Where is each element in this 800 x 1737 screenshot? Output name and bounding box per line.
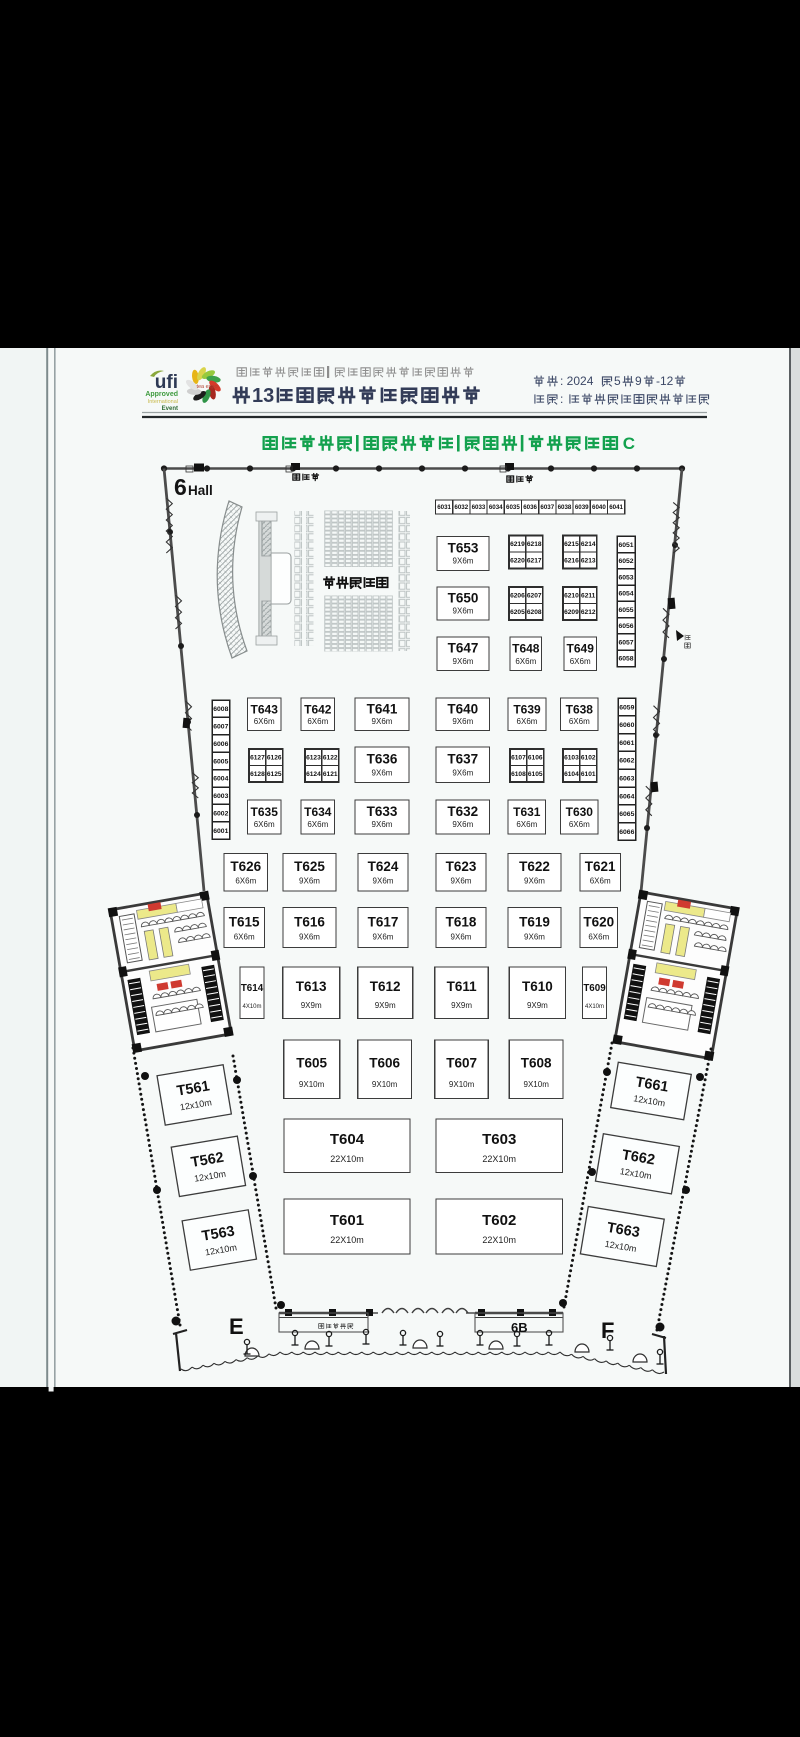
svg-text:6108: 6108 bbox=[511, 771, 526, 778]
svg-text:6X6m: 6X6m bbox=[570, 657, 591, 666]
svg-text:T632: T632 bbox=[447, 804, 478, 819]
svg-text:6210: 6210 bbox=[564, 593, 579, 600]
svg-text:6122: 6122 bbox=[323, 755, 338, 762]
svg-text:T634: T634 bbox=[304, 805, 332, 819]
svg-text:T648: T648 bbox=[512, 642, 540, 656]
svg-text:6125: 6125 bbox=[267, 771, 282, 778]
svg-text:T615: T615 bbox=[229, 914, 260, 929]
svg-text:9X6m: 9X6m bbox=[372, 768, 393, 777]
svg-text:6208: 6208 bbox=[527, 609, 542, 616]
svg-text:22X10m: 22X10m bbox=[482, 1235, 516, 1245]
svg-text:6039: 6039 bbox=[575, 504, 589, 511]
svg-text:C: C bbox=[623, 434, 635, 453]
svg-text:Approved: Approved bbox=[145, 391, 178, 398]
svg-text:T604: T604 bbox=[330, 1131, 365, 1148]
svg-text:9X9m: 9X9m bbox=[301, 1001, 322, 1010]
svg-text:6001: 6001 bbox=[213, 828, 228, 835]
svg-text:22X10m: 22X10m bbox=[482, 1154, 516, 1164]
svg-text:T620: T620 bbox=[583, 914, 614, 929]
svg-text:T626: T626 bbox=[230, 859, 261, 874]
svg-text:9X6m: 9X6m bbox=[299, 933, 320, 942]
svg-text:6: 6 bbox=[174, 474, 187, 500]
svg-text:T624: T624 bbox=[368, 859, 399, 874]
svg-text:6051: 6051 bbox=[618, 542, 633, 549]
svg-text:22X10m: 22X10m bbox=[330, 1154, 364, 1164]
svg-text:6036: 6036 bbox=[523, 504, 537, 511]
svg-text:T643: T643 bbox=[251, 702, 279, 716]
svg-text:T647: T647 bbox=[448, 641, 479, 656]
svg-text:6056: 6056 bbox=[618, 623, 633, 630]
svg-text:6104: 6104 bbox=[564, 771, 579, 778]
svg-text:4X10m: 4X10m bbox=[585, 1004, 604, 1010]
svg-text:T609: T609 bbox=[583, 983, 606, 994]
svg-text:T641: T641 bbox=[367, 701, 398, 716]
svg-text:6005: 6005 bbox=[213, 758, 228, 765]
svg-text:9X9m: 9X9m bbox=[375, 1001, 396, 1010]
svg-text:6058: 6058 bbox=[618, 656, 633, 663]
svg-text:T649: T649 bbox=[567, 642, 595, 656]
svg-text:6008: 6008 bbox=[213, 706, 228, 713]
svg-text:9X6m: 9X6m bbox=[299, 877, 320, 886]
svg-text:6124: 6124 bbox=[306, 771, 321, 778]
svg-text:T630: T630 bbox=[566, 805, 594, 819]
svg-text:6123: 6123 bbox=[306, 755, 321, 762]
svg-text:13: 13 bbox=[252, 385, 274, 407]
svg-text:6126: 6126 bbox=[267, 755, 282, 762]
svg-text:9X10m: 9X10m bbox=[449, 1080, 475, 1089]
svg-text:T633: T633 bbox=[367, 804, 398, 819]
svg-text:9X9m: 9X9m bbox=[527, 1001, 548, 1010]
svg-text:6002: 6002 bbox=[213, 811, 228, 818]
svg-text:T650: T650 bbox=[448, 591, 479, 606]
svg-text:6205: 6205 bbox=[510, 609, 525, 616]
svg-text:: 2024: : 2024 bbox=[560, 374, 594, 388]
svg-text:T614: T614 bbox=[241, 983, 264, 994]
svg-text:6214: 6214 bbox=[581, 541, 596, 548]
svg-text:6064: 6064 bbox=[619, 793, 634, 800]
svg-text:6211: 6211 bbox=[581, 593, 596, 600]
svg-text:6105: 6105 bbox=[528, 771, 543, 778]
svg-text:6037: 6037 bbox=[540, 504, 554, 511]
svg-text:9X10m: 9X10m bbox=[524, 1080, 550, 1089]
svg-text:6041: 6041 bbox=[609, 504, 623, 511]
svg-text:9X6m: 9X6m bbox=[451, 877, 472, 886]
svg-text:6106: 6106 bbox=[528, 755, 543, 762]
svg-text:T617: T617 bbox=[368, 914, 399, 929]
svg-text:6216: 6216 bbox=[564, 558, 579, 565]
svg-text:6213: 6213 bbox=[581, 558, 596, 565]
svg-text:6060: 6060 bbox=[619, 722, 634, 729]
svg-text:6053: 6053 bbox=[618, 574, 633, 581]
svg-text:6X6m: 6X6m bbox=[254, 820, 275, 829]
svg-text:T608: T608 bbox=[521, 1056, 552, 1071]
svg-text:6003: 6003 bbox=[213, 793, 228, 800]
svg-text:6061: 6061 bbox=[619, 740, 634, 747]
svg-text:6006: 6006 bbox=[213, 741, 228, 748]
svg-text:T653: T653 bbox=[448, 541, 479, 556]
svg-text:6X6m: 6X6m bbox=[254, 717, 275, 726]
svg-text:5: 5 bbox=[614, 374, 621, 388]
svg-text:6066: 6066 bbox=[619, 829, 634, 836]
svg-text:9X6m: 9X6m bbox=[453, 606, 474, 615]
svg-text:9X9m: 9X9m bbox=[451, 1001, 472, 1010]
svg-text:9X6m: 9X6m bbox=[453, 657, 474, 666]
svg-text:T639: T639 bbox=[513, 702, 541, 716]
svg-text:6X6m: 6X6m bbox=[517, 717, 538, 726]
svg-text:T637: T637 bbox=[447, 752, 478, 767]
svg-text:6032: 6032 bbox=[454, 504, 468, 511]
svg-text:6063: 6063 bbox=[619, 776, 634, 783]
svg-text:6215: 6215 bbox=[564, 541, 579, 548]
svg-text:6X6m: 6X6m bbox=[234, 933, 255, 942]
svg-text:Hall: Hall bbox=[188, 483, 213, 498]
svg-text:T642: T642 bbox=[304, 702, 332, 716]
svg-text:22X10m: 22X10m bbox=[330, 1235, 364, 1245]
svg-text:9X6m: 9X6m bbox=[451, 933, 472, 942]
svg-text:6103: 6103 bbox=[564, 755, 579, 762]
svg-text:T603: T603 bbox=[482, 1131, 516, 1148]
svg-text:6207: 6207 bbox=[527, 593, 542, 600]
svg-text:6035: 6035 bbox=[506, 504, 520, 511]
svg-text:9X6m: 9X6m bbox=[372, 820, 393, 829]
svg-text:T636: T636 bbox=[367, 752, 398, 767]
svg-text:T638: T638 bbox=[566, 702, 594, 716]
svg-text:T601: T601 bbox=[330, 1212, 364, 1229]
svg-text:6107: 6107 bbox=[511, 755, 526, 762]
svg-text:6054: 6054 bbox=[618, 591, 633, 598]
svg-text:T616: T616 bbox=[294, 914, 325, 929]
svg-text:6X6m: 6X6m bbox=[569, 717, 590, 726]
svg-text:6121: 6121 bbox=[323, 771, 338, 778]
svg-text:9X10m: 9X10m bbox=[372, 1080, 398, 1089]
svg-text:T611: T611 bbox=[447, 979, 478, 994]
svg-text:T605: T605 bbox=[296, 1056, 327, 1071]
svg-text:6219: 6219 bbox=[510, 541, 525, 548]
svg-text:9X6m: 9X6m bbox=[373, 933, 394, 942]
svg-text:9X6m: 9X6m bbox=[524, 877, 545, 886]
svg-text:6065: 6065 bbox=[619, 811, 634, 818]
svg-text:6206: 6206 bbox=[510, 593, 525, 600]
svg-text:4X10m: 4X10m bbox=[242, 1004, 261, 1010]
svg-text:6057: 6057 bbox=[618, 640, 633, 647]
svg-text:6102: 6102 bbox=[581, 755, 596, 762]
svg-text:6101: 6101 bbox=[581, 771, 596, 778]
svg-text:6217: 6217 bbox=[527, 558, 542, 565]
svg-text:T622: T622 bbox=[519, 859, 550, 874]
svg-text:9: 9 bbox=[635, 374, 642, 388]
svg-text:9X6m: 9X6m bbox=[372, 717, 393, 726]
svg-text:6212: 6212 bbox=[581, 609, 596, 616]
svg-text:T631: T631 bbox=[513, 805, 541, 819]
svg-text:Event: Event bbox=[162, 406, 178, 412]
svg-text:9X6m: 9X6m bbox=[452, 717, 473, 726]
svg-text::: : bbox=[560, 392, 563, 406]
svg-text:T618: T618 bbox=[446, 914, 477, 929]
svg-text:T635: T635 bbox=[251, 805, 279, 819]
svg-text:6031: 6031 bbox=[437, 504, 451, 511]
svg-text:6034: 6034 bbox=[489, 504, 503, 511]
svg-text:6X6m: 6X6m bbox=[516, 820, 537, 829]
svg-text:6X6m: 6X6m bbox=[307, 820, 328, 829]
svg-text:6X6m: 6X6m bbox=[307, 717, 328, 726]
svg-text:T621: T621 bbox=[585, 859, 616, 874]
svg-text:6040: 6040 bbox=[592, 504, 606, 511]
svg-text:6218: 6218 bbox=[527, 541, 542, 548]
svg-text:6038: 6038 bbox=[558, 504, 572, 511]
svg-text:6220: 6220 bbox=[510, 558, 525, 565]
svg-text:6062: 6062 bbox=[619, 758, 634, 765]
svg-text:-12: -12 bbox=[656, 374, 674, 388]
svg-text:6128: 6128 bbox=[250, 771, 265, 778]
svg-text:6X6m: 6X6m bbox=[590, 877, 611, 886]
svg-text:9X6m: 9X6m bbox=[373, 877, 394, 886]
svg-text:T602: T602 bbox=[482, 1212, 516, 1229]
svg-text:International: International bbox=[148, 399, 178, 405]
svg-text:6209: 6209 bbox=[564, 609, 579, 616]
svg-text:9X6m: 9X6m bbox=[452, 820, 473, 829]
svg-text:6X6m: 6X6m bbox=[235, 877, 256, 886]
svg-text:6127: 6127 bbox=[250, 755, 265, 762]
svg-text:ufi: ufi bbox=[155, 372, 178, 393]
svg-text:T610: T610 bbox=[522, 979, 553, 994]
svg-text:T640: T640 bbox=[447, 701, 478, 716]
svg-text:9X6m: 9X6m bbox=[452, 768, 473, 777]
svg-text:T612: T612 bbox=[370, 979, 401, 994]
svg-text:9X6m: 9X6m bbox=[453, 557, 474, 566]
svg-text:tea expo: tea expo bbox=[196, 384, 217, 390]
svg-text:T625: T625 bbox=[294, 859, 325, 874]
svg-text:6052: 6052 bbox=[618, 558, 633, 565]
svg-text:6059: 6059 bbox=[619, 704, 634, 711]
svg-text:6055: 6055 bbox=[618, 607, 633, 614]
svg-text:6007: 6007 bbox=[213, 724, 228, 731]
svg-text:E: E bbox=[229, 1314, 244, 1339]
svg-text:6004: 6004 bbox=[213, 776, 228, 783]
svg-text:T623: T623 bbox=[446, 859, 477, 874]
svg-text:T613: T613 bbox=[296, 979, 327, 994]
svg-text:9X10m: 9X10m bbox=[299, 1080, 325, 1089]
svg-text:9X6m: 9X6m bbox=[524, 933, 545, 942]
svg-text:6X6m: 6X6m bbox=[515, 657, 536, 666]
svg-text:T619: T619 bbox=[519, 914, 550, 929]
svg-text:6X6m: 6X6m bbox=[569, 820, 590, 829]
svg-text:T606: T606 bbox=[369, 1056, 400, 1071]
svg-text:6X6m: 6X6m bbox=[588, 933, 609, 942]
svg-text:T607: T607 bbox=[446, 1056, 477, 1071]
svg-text:6033: 6033 bbox=[472, 504, 486, 511]
